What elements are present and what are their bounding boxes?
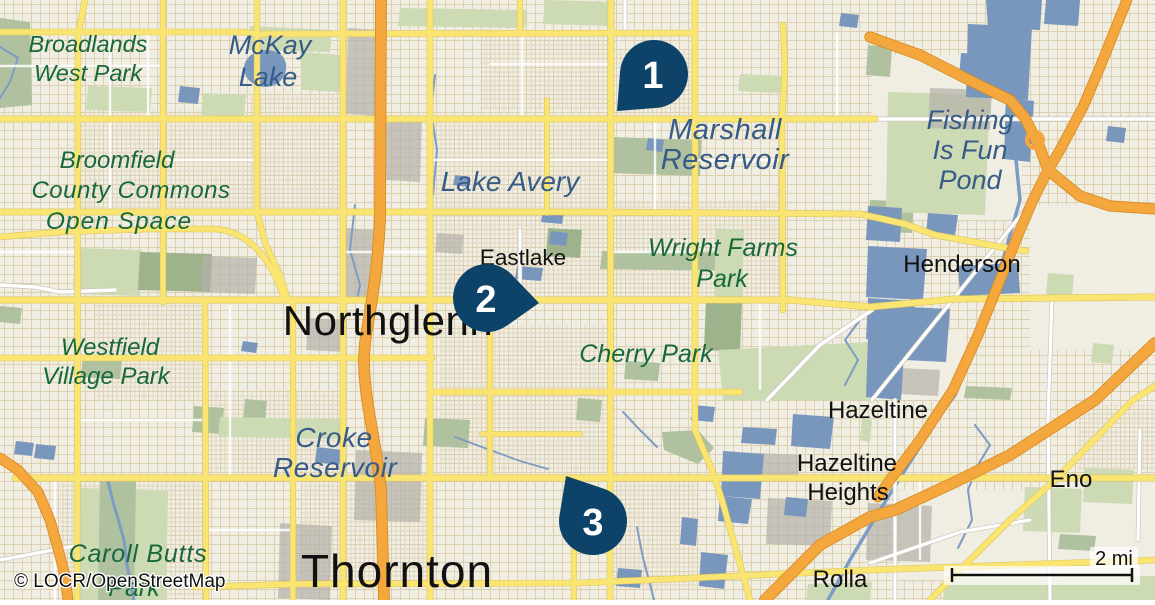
svg-text:West Park: West Park xyxy=(34,60,143,86)
svg-text:Lake Avery: Lake Avery xyxy=(441,166,582,197)
svg-text:Westfield: Westfield xyxy=(61,334,160,361)
svg-text:2: 2 xyxy=(475,279,496,321)
svg-text:Fishing: Fishing xyxy=(926,105,1013,135)
svg-text:Reservoir: Reservoir xyxy=(273,452,398,483)
svg-text:Village Park: Village Park xyxy=(42,363,172,390)
svg-text:McKay: McKay xyxy=(229,30,313,60)
svg-text:Marshall: Marshall xyxy=(668,114,783,146)
svg-text:2 mi: 2 mi xyxy=(1095,548,1133,570)
svg-text:Heights: Heights xyxy=(807,479,888,506)
svg-text:Reservoir: Reservoir xyxy=(661,144,790,176)
svg-text:Croke: Croke xyxy=(295,422,372,453)
svg-text:Broomfield: Broomfield xyxy=(60,147,175,174)
svg-text:Lake: Lake xyxy=(239,62,298,92)
svg-text:Wright Farms: Wright Farms xyxy=(648,234,798,262)
svg-text:Hazeltine: Hazeltine xyxy=(797,450,897,477)
svg-text:Broadlands: Broadlands xyxy=(29,31,148,57)
svg-text:Rolla: Rolla xyxy=(813,566,868,593)
svg-text:1: 1 xyxy=(642,55,663,97)
svg-text:3: 3 xyxy=(582,502,603,544)
svg-text:Henderson: Henderson xyxy=(903,251,1020,278)
svg-text:Is Fun: Is Fun xyxy=(932,135,1007,165)
svg-text:Hazeltine: Hazeltine xyxy=(828,397,928,424)
svg-text:Park: Park xyxy=(696,265,749,293)
svg-text:Thornton: Thornton xyxy=(301,545,493,597)
svg-text:County Commons: County Commons xyxy=(31,177,230,204)
svg-text:Pond: Pond xyxy=(938,165,1002,195)
svg-text:Cherry Park: Cherry Park xyxy=(579,340,714,368)
svg-text:© LOCR/OpenStreetMap: © LOCR/OpenStreetMap xyxy=(14,571,225,592)
svg-text:Open Space: Open Space xyxy=(46,208,192,235)
svg-text:Eno: Eno xyxy=(1050,466,1093,493)
svg-text:Caroll Butts: Caroll Butts xyxy=(69,540,208,568)
